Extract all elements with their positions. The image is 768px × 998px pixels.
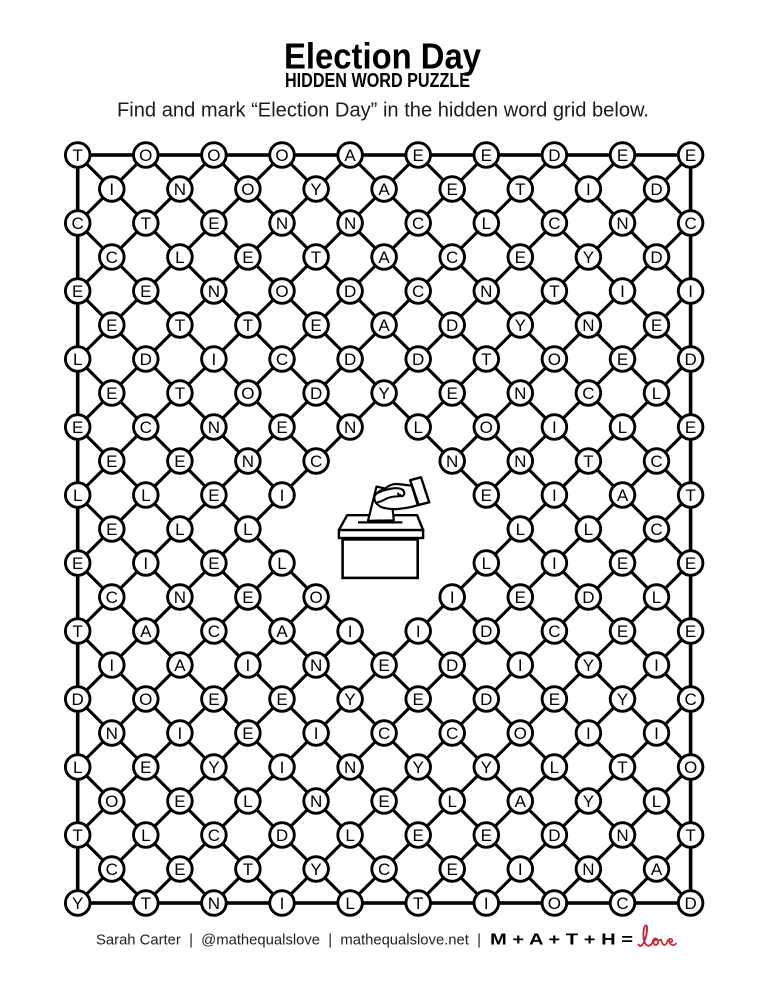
svg-text:E: E — [617, 554, 628, 573]
svg-text:N: N — [344, 418, 356, 437]
svg-text:Y: Y — [344, 690, 355, 709]
svg-text:E: E — [447, 180, 458, 199]
svg-text:T: T — [515, 180, 525, 199]
svg-text:C: C — [378, 860, 390, 879]
svg-text:A: A — [515, 792, 527, 811]
svg-text:D: D — [344, 282, 356, 301]
svg-text:Find and mark “Election Day” i: Find and mark “Election Day” in the hidd… — [117, 99, 649, 122]
svg-text:D: D — [684, 894, 696, 913]
svg-text:L: L — [73, 486, 82, 505]
svg-text:L: L — [652, 384, 661, 403]
svg-text:C: C — [72, 214, 84, 233]
svg-text:L: L — [345, 894, 354, 913]
svg-text:L: L — [277, 554, 286, 573]
svg-text:I: I — [518, 860, 523, 879]
svg-text:D: D — [446, 656, 458, 675]
svg-text:E: E — [174, 860, 185, 879]
svg-text:L: L — [413, 418, 422, 437]
svg-text:N: N — [616, 214, 628, 233]
svg-text:O: O — [207, 146, 220, 165]
svg-text:E: E — [106, 452, 117, 471]
svg-text:C: C — [548, 622, 560, 641]
svg-text:N: N — [208, 418, 220, 437]
svg-text:N: N — [582, 860, 594, 879]
svg-text:T: T — [617, 758, 627, 777]
svg-text:Y: Y — [310, 860, 321, 879]
svg-text:N: N — [344, 214, 356, 233]
svg-text:E: E — [242, 724, 253, 743]
svg-text:I: I — [280, 894, 285, 913]
svg-text:T: T — [243, 860, 253, 879]
svg-text:L: L — [73, 758, 82, 777]
svg-text:L: L — [482, 214, 491, 233]
svg-text:D: D — [650, 248, 662, 267]
svg-text:O: O — [241, 384, 254, 403]
svg-text:L: L — [175, 248, 184, 267]
svg-text:N: N — [174, 180, 186, 199]
svg-text:T: T — [73, 146, 83, 165]
svg-text:D: D — [582, 588, 594, 607]
svg-text:T: T — [141, 214, 151, 233]
svg-text:Y: Y — [481, 758, 492, 777]
svg-text:Y: Y — [208, 758, 219, 777]
svg-text:E: E — [515, 248, 526, 267]
svg-text:E: E — [481, 146, 492, 165]
svg-text:Y: Y — [583, 792, 594, 811]
svg-text:E: E — [310, 316, 321, 335]
svg-text:I: I — [280, 758, 285, 777]
svg-text:E: E — [549, 690, 560, 709]
svg-text:D: D — [72, 690, 84, 709]
svg-text:I: I — [348, 622, 353, 641]
svg-text:E: E — [685, 418, 696, 437]
svg-text:N: N — [582, 316, 594, 335]
svg-text:L: L — [243, 792, 252, 811]
svg-text:D: D — [548, 146, 560, 165]
svg-text:E: E — [685, 622, 696, 641]
svg-text:E: E — [276, 418, 287, 437]
svg-text:L: L — [482, 554, 491, 573]
svg-text:C: C — [446, 724, 458, 743]
svg-text:T: T — [685, 486, 695, 505]
svg-text:E: E — [106, 316, 117, 335]
svg-text:E: E — [651, 316, 662, 335]
svg-text:I: I — [586, 180, 591, 199]
svg-text:I: I — [620, 282, 625, 301]
svg-text:D: D — [276, 826, 288, 845]
svg-text:C: C — [548, 214, 560, 233]
svg-text:L: L — [175, 520, 184, 539]
svg-text:N: N — [208, 894, 220, 913]
svg-text:D: D — [480, 690, 492, 709]
svg-text:N: N — [276, 214, 288, 233]
svg-text:T: T — [243, 316, 253, 335]
svg-text:I: I — [688, 282, 693, 301]
svg-text:L: L — [141, 486, 150, 505]
svg-text:A: A — [617, 486, 629, 505]
svg-text:I: I — [280, 486, 285, 505]
svg-text:E: E — [208, 554, 219, 573]
svg-text:E: E — [276, 690, 287, 709]
svg-text:A: A — [378, 316, 390, 335]
svg-text:N: N — [174, 588, 186, 607]
svg-text:Y: Y — [583, 248, 594, 267]
svg-text:L: L — [516, 520, 525, 539]
svg-text:E: E — [242, 588, 253, 607]
svg-text:I: I — [143, 554, 148, 573]
svg-text:T: T — [73, 826, 83, 845]
svg-text:L: L — [243, 520, 252, 539]
svg-text:C: C — [446, 248, 458, 267]
svg-text:E: E — [208, 486, 219, 505]
svg-text:L: L — [550, 758, 559, 777]
svg-text:D: D — [480, 622, 492, 641]
svg-text:E: E — [378, 792, 389, 811]
svg-text:L: L — [345, 826, 354, 845]
svg-text:C: C — [106, 248, 118, 267]
svg-text:E: E — [515, 588, 526, 607]
svg-text:E: E — [72, 282, 83, 301]
svg-text:L: L — [652, 588, 661, 607]
svg-text:C: C — [684, 690, 696, 709]
svg-text:T: T — [141, 894, 151, 913]
svg-text:I: I — [484, 894, 489, 913]
svg-text:I: I — [416, 622, 421, 641]
svg-text:T: T — [481, 350, 491, 369]
svg-text:T: T — [73, 622, 83, 641]
svg-text:E: E — [481, 486, 492, 505]
svg-text:E: E — [208, 690, 219, 709]
svg-text:E: E — [617, 146, 628, 165]
svg-text:I: I — [654, 724, 659, 743]
svg-text:N: N — [310, 656, 322, 675]
svg-text:E: E — [140, 758, 151, 777]
svg-text:Y: Y — [583, 656, 594, 675]
svg-text:N: N — [310, 792, 322, 811]
svg-text:I: I — [109, 656, 114, 675]
svg-text:M + A + T + H =: M + A + T + H = — [490, 932, 633, 949]
svg-text:C: C — [650, 520, 662, 539]
svg-text:O: O — [241, 180, 254, 199]
svg-text:E: E — [685, 146, 696, 165]
svg-text:E: E — [72, 418, 83, 437]
svg-text:T: T — [175, 384, 185, 403]
svg-text:T: T — [413, 894, 423, 913]
svg-text:Y: Y — [310, 180, 321, 199]
svg-text:HIDDEN WORD PUZZLE: HIDDEN WORD PUZZLE — [285, 70, 470, 92]
svg-text:E: E — [106, 384, 117, 403]
svg-text:D: D — [310, 384, 322, 403]
svg-text:D: D — [650, 180, 662, 199]
svg-text:I: I — [178, 724, 183, 743]
svg-text:E: E — [685, 554, 696, 573]
svg-text:E: E — [481, 826, 492, 845]
svg-text:C: C — [208, 622, 220, 641]
svg-text:L: L — [73, 350, 82, 369]
svg-text:I: I — [518, 656, 523, 675]
svg-text:C: C — [276, 350, 288, 369]
svg-text:N: N — [242, 452, 254, 471]
svg-text:C: C — [310, 452, 322, 471]
svg-text:O: O — [480, 418, 493, 437]
svg-text:I: I — [654, 656, 659, 675]
svg-text:L: L — [447, 792, 456, 811]
svg-text:C: C — [140, 418, 152, 437]
svg-text:A: A — [276, 622, 288, 641]
svg-text:E: E — [617, 350, 628, 369]
svg-text:T: T — [175, 316, 185, 335]
svg-text:O: O — [139, 690, 152, 709]
svg-text:A: A — [174, 656, 186, 675]
svg-text:C: C — [412, 282, 424, 301]
svg-text:I: I — [450, 588, 455, 607]
svg-text:C: C — [684, 214, 696, 233]
svg-text:I: I — [246, 656, 251, 675]
svg-text:E: E — [447, 384, 458, 403]
svg-text:I: I — [552, 418, 557, 437]
svg-text:E: E — [413, 146, 424, 165]
svg-text:O: O — [309, 588, 322, 607]
svg-text:C: C — [582, 384, 594, 403]
svg-text:E: E — [447, 860, 458, 879]
svg-text:O: O — [275, 146, 288, 165]
svg-text:N: N — [480, 282, 492, 301]
svg-text:D: D — [344, 350, 356, 369]
svg-text:T: T — [583, 452, 593, 471]
svg-text:L: L — [618, 418, 627, 437]
svg-text:I: I — [552, 486, 557, 505]
svg-text:D: D — [140, 350, 152, 369]
svg-text:E: E — [208, 214, 219, 233]
svg-text:O: O — [548, 350, 561, 369]
svg-text:A: A — [378, 248, 390, 267]
svg-text:D: D — [548, 826, 560, 845]
svg-text:A: A — [140, 622, 152, 641]
svg-text:E: E — [72, 554, 83, 573]
svg-text:C: C — [616, 894, 628, 913]
svg-text:A: A — [378, 180, 390, 199]
svg-text:I: I — [212, 350, 217, 369]
svg-text:Y: Y — [515, 316, 526, 335]
svg-text:E: E — [617, 622, 628, 641]
svg-text:E: E — [378, 656, 389, 675]
svg-text:A: A — [344, 146, 356, 165]
svg-text:E: E — [174, 792, 185, 811]
svg-text:O: O — [548, 894, 561, 913]
svg-text:N: N — [208, 282, 220, 301]
svg-text:E: E — [174, 452, 185, 471]
svg-text:T: T — [685, 826, 695, 845]
svg-text:N: N — [514, 452, 526, 471]
svg-text:L: L — [652, 792, 661, 811]
svg-text:A: A — [651, 860, 663, 879]
svg-text:E: E — [413, 690, 424, 709]
svg-text:E: E — [242, 248, 253, 267]
svg-text:Y: Y — [413, 758, 424, 777]
svg-text:N: N — [344, 758, 356, 777]
svg-text:C: C — [412, 214, 424, 233]
svg-text:Y: Y — [617, 690, 628, 709]
svg-text:C: C — [106, 588, 118, 607]
svg-text:N: N — [616, 826, 628, 845]
svg-text:E: E — [106, 520, 117, 539]
svg-text:I: I — [586, 724, 591, 743]
svg-text:N: N — [514, 384, 526, 403]
svg-text:Y: Y — [378, 384, 389, 403]
svg-text:O: O — [139, 146, 152, 165]
svg-text:O: O — [514, 724, 527, 743]
svg-text:D: D — [446, 316, 458, 335]
svg-text:O: O — [105, 792, 118, 811]
svg-text:N: N — [446, 452, 458, 471]
svg-text:D: D — [684, 350, 696, 369]
svg-text:Y: Y — [72, 894, 83, 913]
svg-text:C: C — [208, 826, 220, 845]
svg-text:N: N — [106, 724, 118, 743]
svg-text:I: I — [314, 724, 319, 743]
svg-text:Sarah Carter | @mathequalslo: Sarah Carter | @mathequalslove | mathequ… — [96, 933, 481, 949]
svg-text:C: C — [378, 724, 390, 743]
svg-text:I: I — [552, 554, 557, 573]
svg-text:O: O — [275, 282, 288, 301]
svg-text:C: C — [650, 452, 662, 471]
svg-text:D: D — [412, 350, 424, 369]
svg-text:L: L — [584, 520, 593, 539]
svg-text:I: I — [109, 180, 114, 199]
svg-text:E: E — [413, 826, 424, 845]
svg-text:T: T — [311, 248, 321, 267]
svg-text:L: L — [141, 826, 150, 845]
svg-text:C: C — [106, 860, 118, 879]
svg-text:T: T — [549, 282, 559, 301]
svg-text:E: E — [140, 282, 151, 301]
svg-text:O: O — [684, 758, 697, 777]
